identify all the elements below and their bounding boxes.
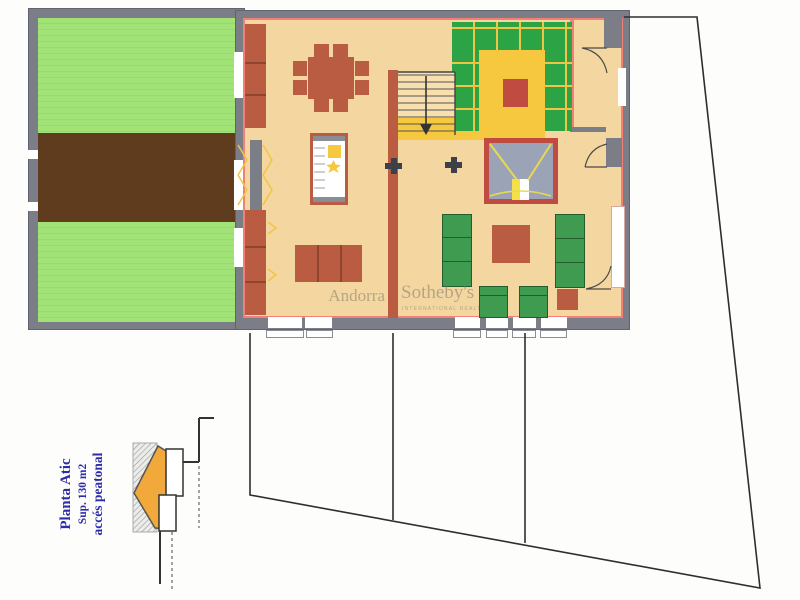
- closet-wall: [250, 140, 262, 215]
- window-sill: [486, 330, 508, 338]
- section-room-upper: [166, 449, 183, 496]
- coffee-table: [492, 225, 530, 263]
- hall-wall-block: [604, 15, 622, 48]
- window-right-top: [618, 68, 626, 106]
- glass-door-right: [611, 206, 625, 288]
- column: [445, 162, 462, 168]
- cabinet-seam: [245, 62, 266, 64]
- sideboard-table: [295, 245, 362, 282]
- window-sill: [512, 330, 536, 338]
- door-to-deck: [234, 160, 243, 210]
- kitchen-floor-strip: [452, 131, 479, 140]
- tv-unit-cap: [313, 197, 345, 202]
- cabinet-seam: [245, 94, 266, 96]
- dining-chair: [355, 61, 369, 76]
- hall-wall-block: [606, 138, 622, 167]
- window-bottom: [513, 317, 536, 328]
- dining-table: [308, 57, 354, 99]
- terrace-deck: [38, 133, 235, 222]
- dining-chair: [355, 80, 369, 95]
- side-table: [557, 289, 578, 310]
- dining-chair: [333, 99, 348, 112]
- floor-plan-scan: Andorra Sotheby's INTERNATIONAL REALTY P…: [0, 0, 800, 600]
- tv-unit-cap: [313, 136, 345, 141]
- terrace-lawn-top: [38, 18, 235, 133]
- section-diagram: [133, 418, 214, 590]
- plan-access-note: accés peatonal: [90, 432, 107, 556]
- fireplace-hearth: [512, 179, 529, 200]
- window-bottom: [455, 317, 480, 328]
- cabinet-seam: [245, 246, 266, 248]
- sofa-seam: [442, 261, 472, 262]
- sofa-seam: [555, 262, 585, 263]
- sideboard-seam: [340, 245, 342, 282]
- sofa-left: [442, 214, 472, 287]
- window-sill: [266, 330, 304, 338]
- watermark-brand-right: Sotheby's: [401, 282, 474, 304]
- sofa-seam: [442, 237, 472, 238]
- armchair: [519, 286, 548, 318]
- sofa-seam: [479, 295, 508, 296]
- dining-chair: [333, 44, 348, 57]
- window-left-bottom: [234, 228, 243, 267]
- window-sill: [540, 330, 567, 338]
- plan-title: Planta Atic: [57, 432, 76, 556]
- cabinet-top-left: [245, 24, 266, 128]
- section-attic-highlight: [134, 446, 171, 529]
- window-bottom: [268, 317, 302, 328]
- dining-chair: [314, 44, 329, 57]
- sofa-right: [555, 214, 585, 288]
- watermark-brand-sub: INTERNATIONAL REALTY: [402, 306, 486, 312]
- window-sill: [306, 330, 333, 338]
- stair-landing: [398, 118, 455, 140]
- window-left-top: [234, 52, 243, 98]
- terrace-wall-gap: [28, 150, 38, 159]
- watermark-brand-left: Andorra: [315, 286, 385, 306]
- tv-unit: [310, 133, 348, 205]
- terrace-wall-gap: [28, 202, 38, 211]
- plan-surface: Sup. 130 m2: [76, 432, 90, 556]
- dining-chair: [293, 61, 307, 76]
- window-bottom: [486, 317, 508, 328]
- kitchen-stove: [503, 79, 528, 107]
- cabinet-seam: [245, 281, 266, 283]
- terrace-lawn-bottom: [38, 222, 235, 322]
- wardrobe-bottom-left: [245, 210, 266, 315]
- kitchen-counter-right: [544, 50, 572, 131]
- armchair: [479, 286, 508, 318]
- kitchen-counter-top: [452, 22, 572, 50]
- wall-pillar: [388, 70, 398, 318]
- window-bottom: [541, 317, 567, 328]
- section-step-line: [183, 418, 214, 462]
- sideboard-seam: [317, 245, 319, 282]
- kitchen-counter-left: [452, 50, 480, 131]
- column: [385, 163, 402, 169]
- tv-unit-shelf-box: [328, 145, 341, 158]
- window-bottom: [305, 317, 332, 328]
- section-hatch: [133, 443, 157, 532]
- dining-chair: [314, 99, 329, 112]
- sofa-seam: [555, 238, 585, 239]
- plan-title-block: Planta Atic Sup. 130 m2 accés peatonal: [57, 432, 107, 556]
- hall-wall-segment: [570, 127, 606, 132]
- window-sill: [453, 330, 481, 338]
- dining-chair: [293, 80, 307, 95]
- section-room-lower: [159, 495, 176, 531]
- sofa-seam: [519, 295, 548, 296]
- staircase: [398, 72, 455, 118]
